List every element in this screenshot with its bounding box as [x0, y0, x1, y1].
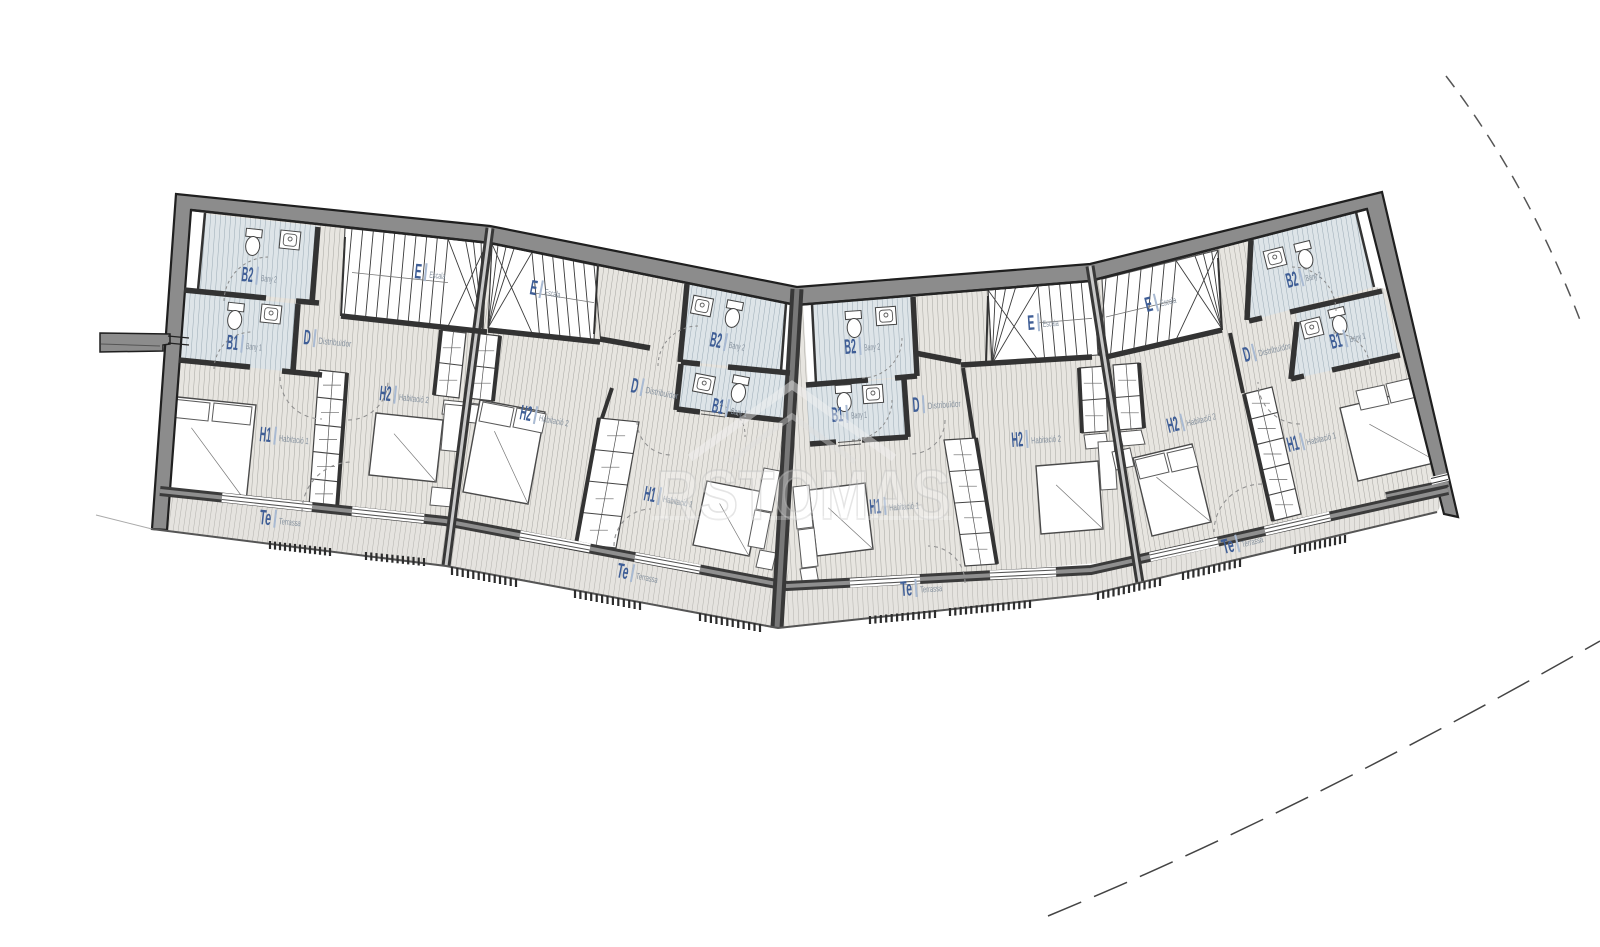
svg-text:H2: H2 [378, 382, 392, 406]
svg-text:Te: Te [258, 506, 272, 530]
svg-text:Te: Te [900, 577, 913, 601]
svg-text:Escala: Escala [1042, 318, 1059, 329]
svg-text:Escala: Escala [429, 270, 446, 282]
svg-text:H2: H2 [1011, 428, 1024, 452]
svg-text:Bany 2: Bany 2 [864, 342, 881, 353]
svg-text:Habitació 2: Habitació 2 [1031, 434, 1062, 446]
svg-text:Terrassa: Terrassa [920, 583, 943, 595]
svg-text:Bany 1: Bany 1 [851, 410, 868, 421]
svg-text:B2: B2 [240, 263, 254, 287]
svg-text:B2: B2 [844, 335, 857, 359]
svg-text:Bany 1: Bany 1 [245, 341, 262, 353]
svg-text:RSTOMAS: RSTOMAS [656, 456, 951, 534]
svg-text:Bany 2: Bany 2 [260, 273, 277, 285]
